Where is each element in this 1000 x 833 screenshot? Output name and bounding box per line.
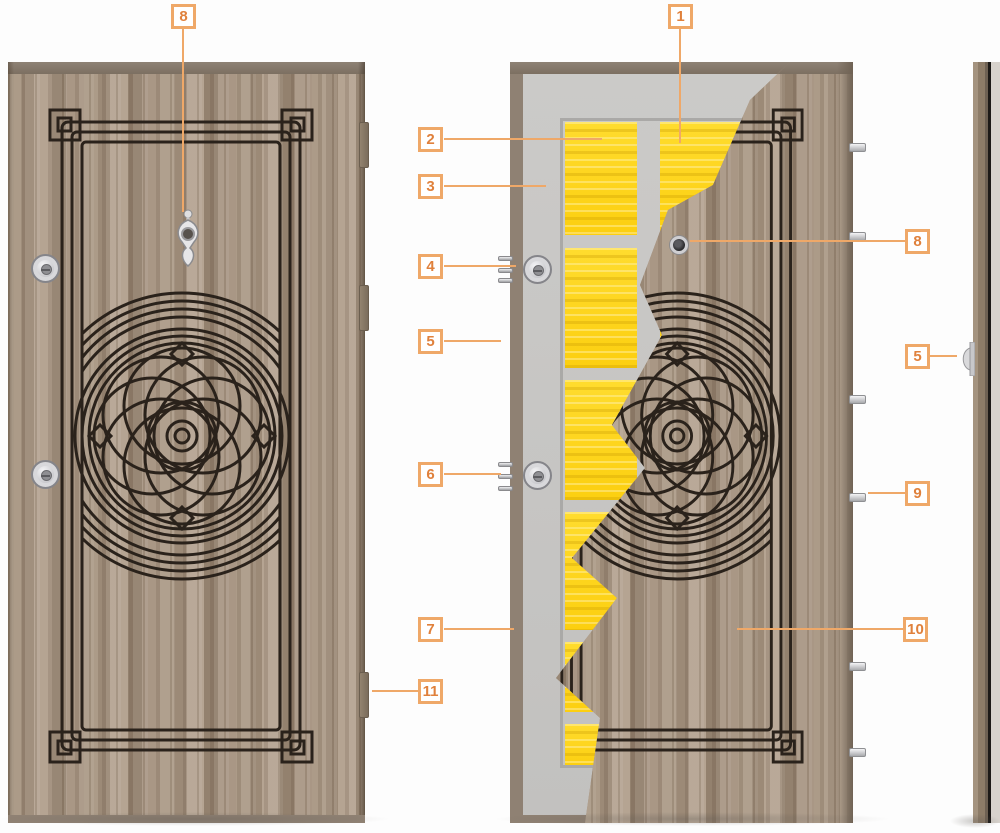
hinge-top [359, 122, 369, 168]
lock-bolt [498, 278, 513, 283]
lock-bolt [498, 256, 513, 261]
callout-lock-bottom: 6 [418, 462, 443, 487]
lock-cylinder-top [523, 255, 552, 284]
callout-hinge: 11 [418, 679, 443, 704]
callout-wood-panel: 10 [903, 617, 928, 642]
callout-insulation: 2 [418, 127, 443, 152]
leader-line-wood-panel [737, 628, 903, 630]
leader-line-lock-bottom [444, 473, 501, 475]
callout-number: 9 [913, 485, 921, 502]
door-top-bevel [8, 62, 365, 74]
floor-shadow [495, 812, 890, 826]
door-frame-edge [510, 62, 523, 823]
callout-security-pin: 9 [905, 481, 930, 506]
callout-number: 10 [907, 621, 924, 638]
leader-line-peephole [690, 240, 905, 242]
security-pin [849, 143, 866, 152]
callout-number: 6 [426, 466, 434, 483]
door-exterior-view [8, 62, 365, 823]
side-peephole-knob [959, 342, 975, 376]
door-cutaway-view [510, 62, 853, 823]
door-left-bevel [8, 62, 14, 823]
door-side-view [973, 62, 1000, 823]
callout-number: 8 [179, 8, 187, 25]
leader-line-hinge [372, 690, 418, 692]
hinge-bottom [359, 672, 369, 718]
callout-peephole: 8 [905, 229, 930, 254]
callout-lock-top: 4 [418, 254, 443, 279]
callout-knocker: 8 [171, 4, 196, 29]
callout-number: 5 [426, 333, 434, 350]
lock-cylinder-top [31, 254, 60, 283]
callout-number: 7 [426, 621, 434, 638]
wood-right-bevel [837, 62, 853, 823]
diagram-canvas: 8 1 2 3 4 5 6 7 11 8 5 9 [0, 0, 1000, 833]
security-pin [849, 662, 866, 671]
security-pin [849, 493, 866, 502]
peephole [670, 236, 688, 254]
leader-line-insulation [444, 138, 602, 140]
callout-steel-sheet: 1 [668, 4, 693, 29]
callout-number: 5 [913, 348, 921, 365]
lock-bolt [498, 268, 513, 273]
leader-line-lock-top [444, 265, 516, 267]
lock-bolt [498, 486, 513, 491]
insulation-block [565, 248, 637, 368]
callout-inner-sheet: 7 [418, 617, 443, 642]
floor-shadow [950, 814, 1000, 828]
callout-number: 11 [423, 683, 439, 700]
floor-shadow [0, 812, 390, 826]
callout-number: 8 [913, 233, 921, 250]
callout-number: 2 [426, 131, 434, 148]
lock-bolt [498, 462, 513, 467]
leader-line-side-peephole [930, 355, 957, 357]
leader-line-knocker [182, 29, 184, 212]
leader-line-steel-body [444, 185, 546, 187]
callout-number: 4 [426, 258, 434, 275]
callout-steel-body: 3 [418, 174, 443, 199]
leader-line-steel-sheet [679, 29, 681, 143]
security-pin [849, 395, 866, 404]
callout-number: 1 [676, 8, 684, 25]
security-pin [849, 748, 866, 757]
callout-side-peephole: 5 [905, 344, 930, 369]
callout-frame-edge: 5 [418, 329, 443, 354]
callout-number: 3 [426, 178, 434, 195]
door-knocker-icon [173, 208, 203, 272]
leader-line-inner-sheet [444, 628, 514, 630]
lock-cylinder-bottom [31, 460, 60, 489]
lock-cylinder-bottom [523, 461, 552, 490]
hinge-middle [359, 285, 369, 331]
leader-line-frame-edge [444, 340, 501, 342]
leader-line-security-pin [868, 492, 905, 494]
door-ornament-pattern [8, 62, 365, 823]
